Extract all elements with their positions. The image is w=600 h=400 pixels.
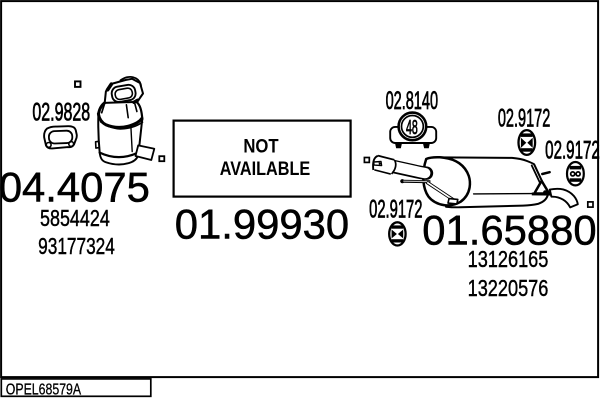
svg-text:13220576: 13220576 <box>468 276 549 302</box>
svg-text:02.9828: 02.9828 <box>32 99 90 126</box>
svg-text:01.99930: 01.99930 <box>175 200 349 247</box>
svg-text:93177324: 93177324 <box>38 234 115 260</box>
svg-text:48: 48 <box>406 117 418 140</box>
svg-text:5854424: 5854424 <box>40 206 110 232</box>
svg-text:13126165: 13126165 <box>468 247 549 273</box>
svg-text:04.4075: 04.4075 <box>0 164 150 211</box>
svg-text:AVAILABLE: AVAILABLE <box>220 158 311 179</box>
svg-text:02.8140: 02.8140 <box>386 88 438 115</box>
svg-text:02.9172: 02.9172 <box>369 197 422 224</box>
svg-text:02.9172: 02.9172 <box>498 106 550 133</box>
svg-text:02.9172: 02.9172 <box>545 138 600 165</box>
svg-text:NOT: NOT <box>243 136 278 157</box>
svg-text:OPEL68579A: OPEL68579A <box>6 380 82 398</box>
